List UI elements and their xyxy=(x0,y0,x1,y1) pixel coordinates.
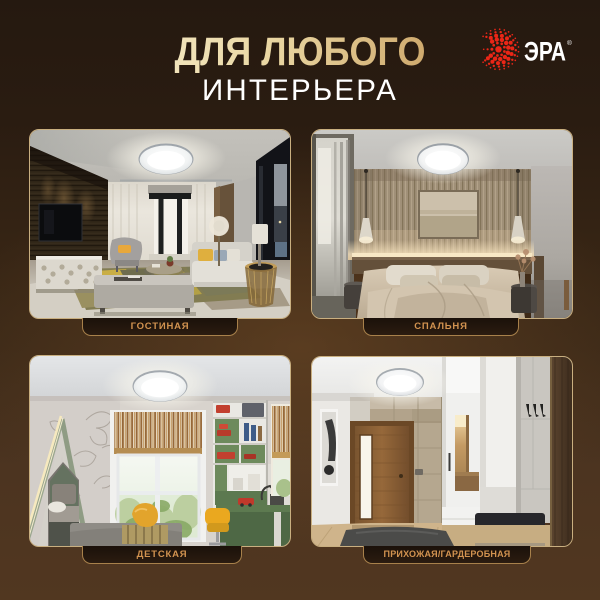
svg-text:®: ® xyxy=(567,39,572,47)
svg-text:ЭРА: ЭРА xyxy=(524,37,566,67)
